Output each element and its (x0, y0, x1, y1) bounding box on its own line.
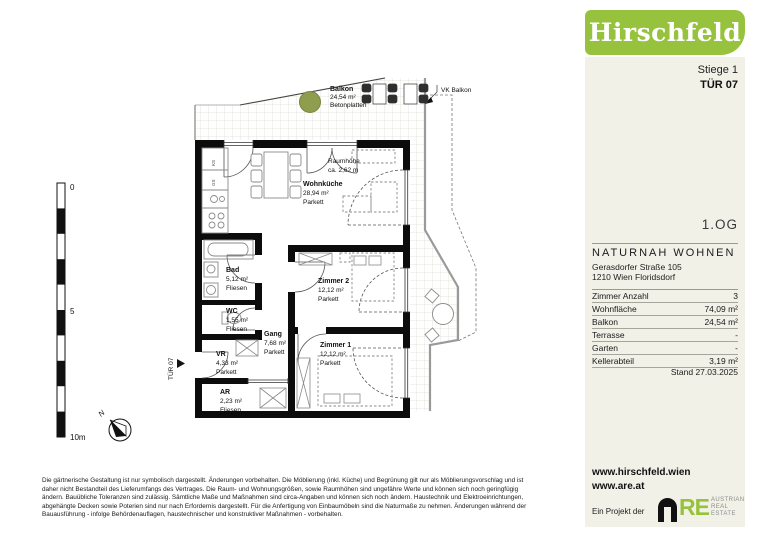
svg-text:28,94 m²: 28,94 m² (303, 190, 329, 197)
stiege-label: Stiege 1 (592, 64, 738, 76)
table-row: Wohnfläche 74,09 m² (592, 303, 738, 316)
are-logo-icon (658, 498, 677, 522)
table-row: Balkon 24,54 m² (592, 316, 738, 329)
svg-text:Zimmer 1: Zimmer 1 (320, 342, 351, 349)
svg-text:Fliesen: Fliesen (220, 407, 241, 414)
stand-date: Stand 27.03.2025 (592, 367, 738, 377)
svg-text:Raumhöhe: Raumhöhe (328, 158, 360, 165)
brand-logo: Hirschfeld (589, 18, 741, 47)
address-line1: Gerasdorfer Straße 105 (592, 262, 738, 272)
table-row: Zimmer Anzahl 3 (592, 290, 738, 303)
svg-text:Fliesen: Fliesen (226, 326, 247, 333)
brand-banner: Hirschfeld (585, 10, 745, 55)
svg-text:5: 5 (70, 307, 75, 316)
svg-text:24,54 m²: 24,54 m² (330, 94, 356, 101)
facts-table: Zimmer Anzahl 3 Wohnfläche 74,09 m² Balk… (592, 289, 738, 368)
fact-value: - (735, 330, 738, 340)
svg-text:4,33 m²: 4,33 m² (216, 360, 239, 367)
svg-text:Parkett: Parkett (216, 369, 237, 376)
svg-text:12,12 m²: 12,12 m² (318, 287, 344, 294)
fact-label: Terrasse (592, 330, 625, 340)
svg-text:2,23 m²: 2,23 m² (220, 398, 243, 405)
fact-value: - (735, 343, 738, 353)
svg-text:Wohnküche: Wohnküche (303, 181, 343, 188)
svg-text:AR: AR (220, 389, 230, 396)
svg-text:Parkett: Parkett (318, 296, 339, 303)
svg-text:WC: WC (226, 308, 238, 315)
fact-label: Zimmer Anzahl (592, 291, 649, 301)
scale-bar: 0 5 10m (57, 183, 86, 442)
disclaimer-text: Die gärtnerische Gestaltung ist nur symb… (42, 477, 526, 520)
vk-balkon-label: VK Balkon (441, 87, 472, 94)
fact-value: 24,54 m² (704, 317, 738, 327)
table-row: Garten - (592, 342, 738, 355)
svg-text:Bad: Bad (226, 267, 239, 274)
svg-text:Parkett: Parkett (264, 349, 285, 356)
project-info: NATURNAH WOHNEN Gerasdorfer Straße 105 1… (592, 243, 738, 282)
tree-icon (300, 92, 321, 113)
dining-set (251, 152, 301, 198)
svg-text:Zimmer 2: Zimmer 2 (318, 278, 349, 285)
svg-text:5,12 m²: 5,12 m² (226, 276, 249, 283)
website-link-are[interactable]: www.are.at (592, 481, 644, 492)
project-note: Ein Projekt der (592, 507, 644, 516)
table-row: Terrasse - (592, 329, 738, 342)
fact-value: 74,09 m² (704, 304, 738, 314)
tuer-label: TÜR 07 (592, 79, 738, 91)
svg-text:Betonplatten: Betonplatten (330, 102, 367, 109)
fact-label: Wohnfläche (592, 304, 637, 314)
svg-text:Parkett: Parkett (303, 199, 324, 206)
svg-text:KS: KS (211, 160, 216, 166)
entrance-marker: TÜR 07 (167, 357, 185, 380)
fact-label: Kellerabteil (592, 356, 634, 366)
svg-text:Gang: Gang (264, 331, 282, 338)
svg-text:7,68 m²: 7,68 m² (264, 340, 287, 347)
svg-text:GS: GS (211, 179, 216, 186)
fact-value: 3 (733, 291, 738, 301)
svg-text:Fliesen: Fliesen (226, 285, 247, 292)
project-name: NATURNAH WOHNEN (592, 247, 738, 259)
fact-label: Balkon (592, 317, 618, 327)
svg-text:Balkon: Balkon (330, 86, 353, 93)
website-link-hirschfeld[interactable]: www.hirschfeld.wien (592, 467, 691, 478)
svg-text:10m: 10m (70, 433, 86, 442)
svg-text:1,55 m²: 1,55 m² (226, 317, 249, 324)
floor-label: 1.OG (698, 217, 738, 232)
address-line2: 1210 Wien Floridsdorf (592, 272, 738, 282)
plan-compass-icon: N (97, 408, 131, 441)
svg-text:Parkett: Parkett (320, 360, 341, 367)
fact-label: Garten (592, 343, 618, 353)
are-logo-text: AUSTRIAN REAL ESTATE (711, 497, 745, 518)
are-logo-re: RE (679, 494, 709, 521)
fact-value: 3,19 m² (709, 356, 738, 366)
svg-text:VR: VR (216, 351, 226, 358)
svg-text:12,12 m²: 12,12 m² (320, 351, 346, 358)
svg-text:0: 0 (70, 183, 75, 192)
svg-text:N: N (97, 408, 107, 419)
svg-text:ca. 2,62 m: ca. 2,62 m (328, 167, 358, 174)
entrance-label: TÜR 07 (167, 357, 175, 380)
